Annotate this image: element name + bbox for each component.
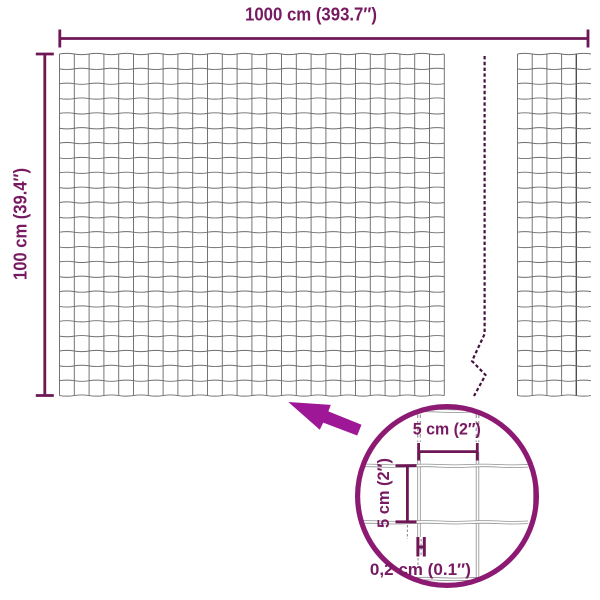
svg-text:5 cm (2″): 5 cm (2″) <box>374 458 393 528</box>
svg-text:0,2 cm (0.1″): 0,2 cm (0.1″) <box>370 560 471 579</box>
svg-text:5 cm (2″): 5 cm (2″) <box>413 420 481 439</box>
svg-text:100 cm (39.4″): 100 cm (39.4″) <box>11 168 31 280</box>
svg-text:1000 cm (393.7″): 1000 cm (393.7″) <box>245 5 377 25</box>
